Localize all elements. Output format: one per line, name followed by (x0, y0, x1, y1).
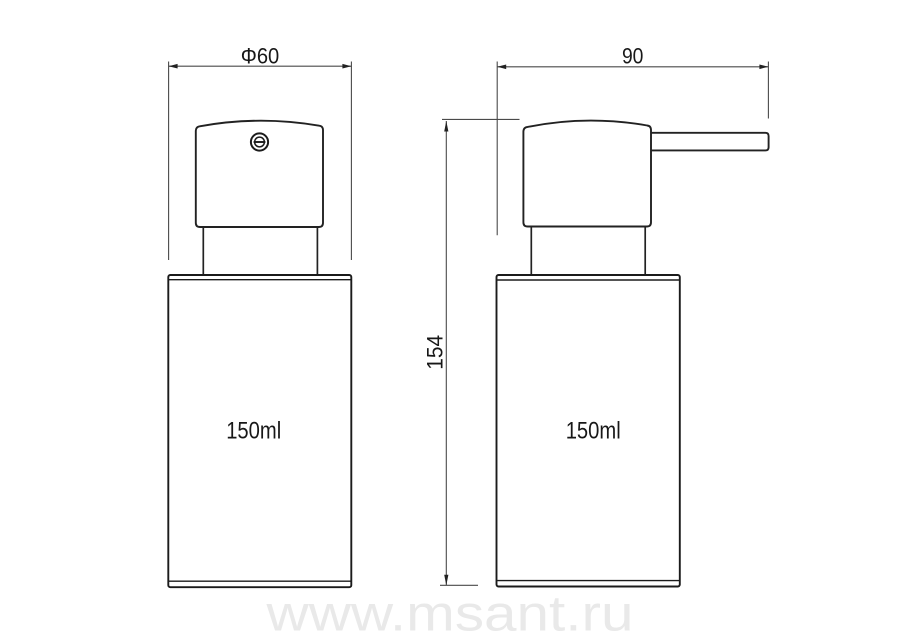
svg-text:150ml: 150ml (226, 418, 281, 445)
svg-text:90: 90 (622, 44, 644, 69)
svg-text:Φ60: Φ60 (241, 44, 280, 69)
svg-text:www.msant.ru: www.msant.ru (265, 586, 633, 637)
svg-text:154: 154 (423, 335, 448, 370)
svg-text:150ml: 150ml (566, 418, 621, 445)
